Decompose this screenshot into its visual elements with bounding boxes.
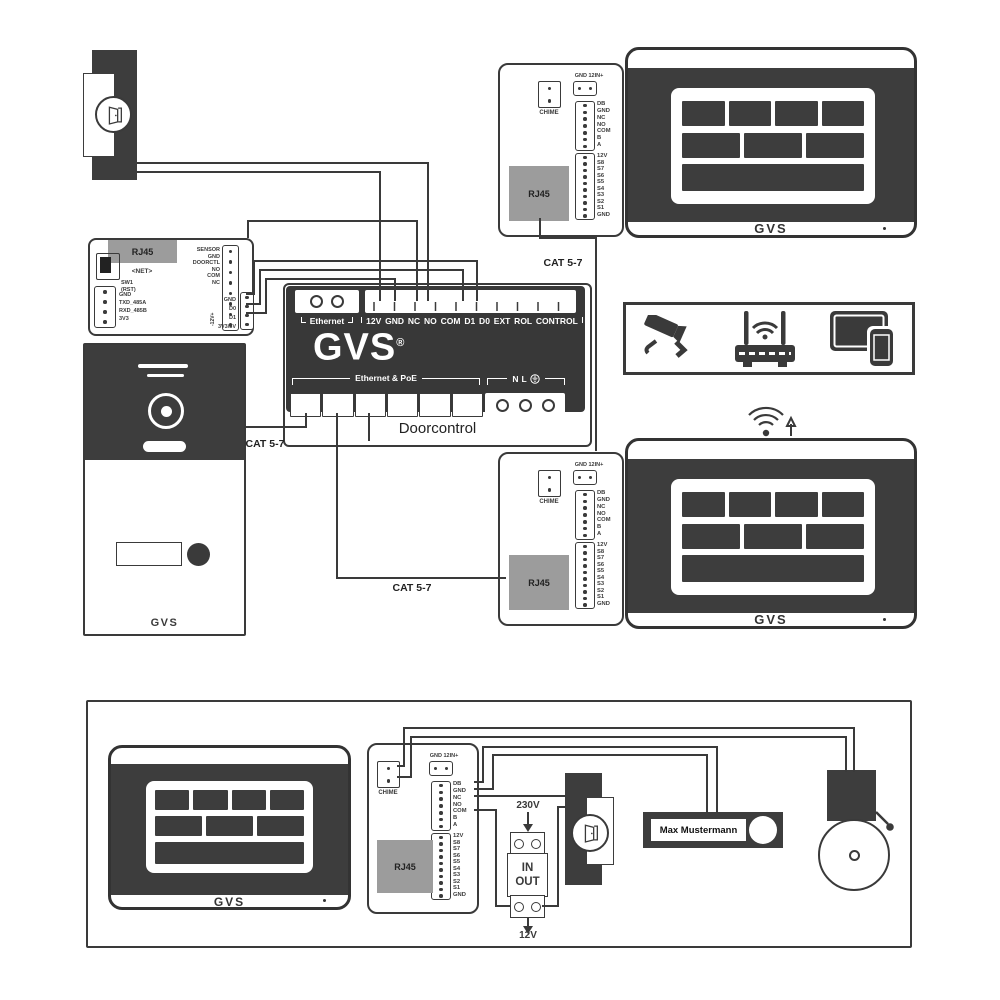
doorcontrol-caption: Doorcontrol (285, 420, 590, 437)
monitor-connection-module-1: CHIME GND 12IN+ DBGNDNCNOCOMBA 12VS8S7S6… (498, 63, 624, 237)
door-opener-bottom-badge (571, 814, 609, 852)
poe-port (355, 393, 386, 417)
bracket-cap (292, 378, 297, 385)
scene-connector (575, 542, 595, 609)
monitor-ui-tiles (671, 88, 875, 204)
door-opener-top-badge (95, 96, 132, 133)
rj45-port: RJ45 (377, 840, 433, 893)
mains-label: N L (507, 374, 544, 384)
terminal-hole (514, 902, 524, 912)
terminal-hole (514, 839, 524, 849)
door-icon (579, 822, 601, 844)
net-label: <NET> (116, 268, 168, 275)
scene-connector (431, 833, 451, 900)
doorbell-button (749, 816, 777, 844)
outdoor-door-station: GVS (83, 343, 246, 636)
mains-terminal-hole (496, 399, 509, 412)
earth-ground-icon (530, 374, 540, 384)
power-connector (573, 81, 597, 96)
gong-center (849, 850, 860, 861)
cable-label-cat57: CAT 5-7 (531, 257, 595, 269)
rs485-connector (94, 286, 116, 328)
speaker-slot (147, 374, 184, 377)
cable-label-cat57: CAT 5-7 (233, 438, 297, 450)
ethernet-port-strip (295, 290, 359, 313)
terminal-strip (365, 290, 576, 313)
poe-port (419, 393, 450, 417)
name-tag-slot (116, 542, 182, 566)
mains-bracket: N L (487, 378, 565, 385)
indoor-monitor-2: GVS (625, 438, 917, 629)
terminal-hole (531, 839, 541, 849)
rs485-pin-labels: GNDTXD_485ARXD_485B3V3 (119, 291, 147, 324)
chime-bell-mount (827, 770, 876, 821)
scene-pin-labels: 12VS8S7S6S5S4S3S2S1GND (453, 833, 466, 898)
poe-port (290, 393, 321, 417)
microphone-hole (323, 899, 327, 903)
poe-port-strip (290, 393, 483, 417)
monitor-ui-tiles (671, 479, 875, 595)
gvs-logo: GVS (111, 895, 348, 909)
bracket-cap (301, 317, 306, 323)
mains-voltage-label: 230V (506, 800, 550, 811)
bus-connector (575, 101, 595, 151)
power-supply-unit: IN OUT (507, 853, 548, 897)
ethernet-port-hole (310, 295, 323, 308)
wifi-icon (733, 398, 803, 440)
chime-connector (538, 470, 561, 497)
network-devices-box (623, 302, 915, 375)
bracket-cap (560, 378, 565, 385)
scene-connector (575, 153, 595, 220)
psu-in-label: IN (508, 862, 547, 874)
data-connector (240, 292, 254, 330)
bus-connector (575, 490, 595, 540)
wifi-router-icon (733, 309, 797, 369)
chime-bell-gong (818, 819, 890, 891)
gvs-logo: GVS (85, 617, 244, 629)
gvs-logo: GVS (628, 221, 914, 236)
registered-mark: ® (396, 337, 405, 349)
bus-pin-labels: DBGNDNCNOCOMBA (597, 490, 611, 538)
mains-terminal-hole (519, 399, 532, 412)
scene-pin-labels: 12VS8S7S6S5S4S3S2S1GND (597, 542, 610, 607)
scene-pin-labels: 12VS8S7S6S5S4S3S2S1GND (597, 153, 610, 218)
ethernet-port-hole (331, 295, 344, 308)
microphone-hole (883, 618, 887, 622)
output-voltage-label: 12V (506, 930, 550, 941)
bus-pin-labels: DBGNDNCNOCOMBA (597, 101, 611, 149)
doorbell-button-panel: Max Mustermann (643, 812, 783, 848)
poe-bracket: Ethernet & PoE (292, 378, 480, 385)
power-label: GND 12IN+ (560, 462, 618, 468)
chime-label: CHIME (527, 499, 571, 505)
bus-label: -12V+ (210, 300, 216, 326)
indoor-monitor-1: GVS (625, 47, 917, 238)
chime-connector (538, 81, 561, 108)
bus-pin-labels: DBGNDNCNOCOMBA (453, 781, 467, 829)
power-connector (573, 470, 597, 485)
poe-label: Ethernet & PoE (350, 374, 422, 383)
gvs-logo: GVS® (313, 323, 405, 368)
switch-knob (100, 257, 111, 273)
poe-port (387, 393, 418, 417)
mains-terminal-hole (542, 399, 555, 412)
psu-output-terminal (510, 895, 545, 918)
chime-connector (377, 761, 400, 788)
bracket-cap (475, 378, 480, 385)
power-label: GND 12IN+ (560, 73, 618, 79)
chime-label: CHIME (527, 110, 571, 116)
status-light (143, 441, 186, 452)
cctv-camera-icon (642, 315, 700, 363)
sensor-pin-labels: SENSORGNDDOORCTLNOCOMNC (178, 247, 220, 287)
microphone-hole (883, 227, 887, 231)
door-icon (103, 104, 125, 126)
bracket-cap (487, 378, 492, 385)
cable-label-cat57: CAT 5-7 (380, 582, 444, 594)
speaker-slot (138, 364, 188, 368)
rj45-port: RJ45 (509, 166, 569, 221)
psu-out-label: OUT (508, 876, 547, 888)
chime-label: CHIME (366, 790, 410, 796)
bracket-cap (582, 317, 583, 323)
gvs-logo: GVS (628, 612, 914, 627)
power-connector (429, 761, 453, 776)
reset-switch (96, 253, 120, 280)
tablet-phone-icon (830, 309, 896, 369)
monitor-connection-module-3: CHIME GND 12IN+ DBGNDNCNOCOMBA 12VS8S7S6… (367, 743, 479, 914)
n-label: N (512, 375, 518, 384)
poe-port (322, 393, 353, 417)
monitor-connection-module-2: CHIME GND 12IN+ DBGNDNCNOCOMBA 12VS8S7S6… (498, 452, 624, 626)
rj45-port: RJ45 (509, 555, 569, 610)
psu-input-terminal (510, 832, 545, 855)
call-button (187, 543, 210, 566)
camera-lens (148, 393, 184, 429)
terminal-hole (531, 902, 541, 912)
power-label: GND 12IN+ (415, 753, 473, 759)
doorcontrol-unit: Ethernet 12V GND NC NO COM D1 D0 EXT ROL… (283, 283, 592, 447)
wiring-diagram-page: { "brand": {"logo": "GVS", "reg": "®"}, … (0, 0, 1000, 1000)
l-label: L (521, 375, 526, 384)
resident-name-tag: Max Mustermann (651, 819, 746, 841)
bus-connector (431, 781, 451, 831)
monitor-ui-tiles (146, 781, 313, 873)
indoor-monitor-3: GVS (108, 745, 351, 910)
ip-gateway-module: RJ45 <NET> SW1(RST) GNDTXD_485ARXD_485B3… (88, 238, 254, 336)
mains-terminal-strip (485, 393, 565, 417)
poe-port (452, 393, 483, 417)
